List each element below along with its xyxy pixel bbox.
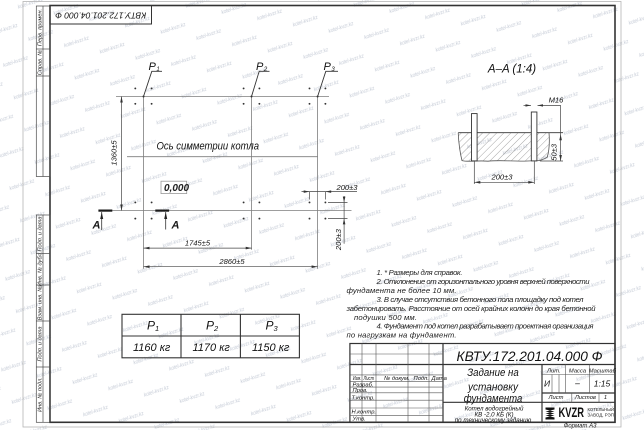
svg-text:4. Фундамент под котел разраба: 4. Фундамент под котел разрабатывает про…: [377, 322, 594, 331]
svg-text:50±3: 50±3: [549, 143, 558, 161]
svg-text:Подп. и дата: Подп. и дата: [38, 216, 44, 251]
svg-text:Лист: Лист: [363, 376, 374, 382]
svg-text:Пров.: Пров.: [353, 388, 368, 394]
svg-text:ЗАВОД, РЭП: ЗАВОД, РЭП: [588, 413, 615, 418]
svg-text:фундамента не более 10 мм.: фундамента не более 10 мм.: [347, 286, 457, 295]
svg-text:по техническому заданию: по техническому заданию: [455, 417, 532, 424]
svg-text:0,000: 0,000: [164, 183, 189, 194]
svg-text:И: И: [544, 379, 551, 389]
svg-text:Перв. примен.: Перв. примен.: [38, 9, 44, 46]
svg-text:2860±5: 2860±5: [218, 257, 245, 266]
svg-text:Ось симметрии котла: Ось симметрии котла: [157, 140, 260, 152]
svg-text:Масштаб: Масштаб: [589, 369, 617, 375]
svg-text:КОТЕЛЬНЫЙ: КОТЕЛЬНЫЙ: [588, 405, 615, 412]
svg-text:Инв. № подл.: Инв. № подл.: [38, 377, 44, 412]
svg-text:3. В случае отсутствия бетонно: 3. В случае отсутствия бетонного пола пл…: [377, 295, 585, 304]
svg-text:Т.контр.: Т.контр.: [352, 395, 375, 401]
svg-text:Масса: Масса: [569, 369, 587, 375]
svg-text:КВТУ.172.201.04.000 Ф: КВТУ.172.201.04.000 Ф: [457, 349, 603, 364]
svg-text:Инв. № дубл.: Инв. № дубл.: [38, 252, 44, 286]
svg-text:1. * Размеры для справок.: 1. * Размеры для справок.: [377, 268, 463, 277]
svg-text:Утв.: Утв.: [352, 417, 366, 423]
svg-text:1745±5: 1745±5: [185, 238, 211, 247]
svg-text:–: –: [574, 378, 580, 388]
svg-text:Подп. и дата: Подп. и дата: [38, 326, 44, 361]
svg-text:№ докум.: № докум.: [384, 376, 410, 382]
svg-text:Листов: Листов: [574, 395, 596, 401]
svg-text:1150 кг: 1150 кг: [252, 342, 290, 354]
svg-text:A: A: [171, 219, 180, 231]
svg-text:A: A: [92, 220, 101, 232]
svg-text:1360±5: 1360±5: [109, 140, 118, 166]
svg-text:Формат А3: Формат А3: [564, 424, 597, 430]
svg-text:2. Отклонение от горизонтально: 2. Отклонение от горизонтального уровня …: [376, 277, 591, 286]
svg-text:1160 кг: 1160 кг: [133, 342, 171, 354]
svg-text:КВТУ.172.201.04.000 Ф: КВТУ.172.201.04.000 Ф: [55, 11, 147, 20]
svg-text:Лист: Лист: [548, 395, 564, 401]
svg-text:200±3: 200±3: [335, 183, 358, 192]
svg-text:забетонировать. Расстояние от: забетонировать. Расстояние от осей крайн…: [346, 304, 597, 313]
svg-text:200±3: 200±3: [490, 173, 513, 182]
svg-text:Задание на: Задание на: [467, 367, 519, 379]
svg-text:М16: М16: [549, 96, 565, 105]
svg-text:Дата: Дата: [431, 376, 448, 382]
svg-text:установку: установку: [467, 382, 519, 394]
svg-text:200±3: 200±3: [334, 228, 343, 251]
svg-text:по нагрузкам на фундамент.: по нагрузкам на фундамент.: [347, 331, 457, 340]
svg-text:A–A (1:4): A–A (1:4): [487, 64, 536, 76]
svg-text:1:15: 1:15: [594, 379, 611, 389]
svg-text:1: 1: [604, 395, 607, 401]
svg-text:Справ. №: Справ. №: [38, 50, 44, 75]
svg-text:1170 кг: 1170 кг: [193, 342, 231, 354]
svg-text:Взам. инв. №: Взам. инв. №: [38, 286, 44, 321]
svg-text:Лит.: Лит.: [546, 369, 561, 375]
svg-text:Изм.: Изм.: [353, 376, 362, 382]
svg-text:фундамента: фундамента: [464, 393, 523, 405]
svg-text:Н.контр.: Н.контр.: [352, 410, 377, 416]
svg-text:Подп.: Подп.: [414, 376, 429, 382]
svg-text:KVZR: KVZR: [559, 405, 585, 420]
